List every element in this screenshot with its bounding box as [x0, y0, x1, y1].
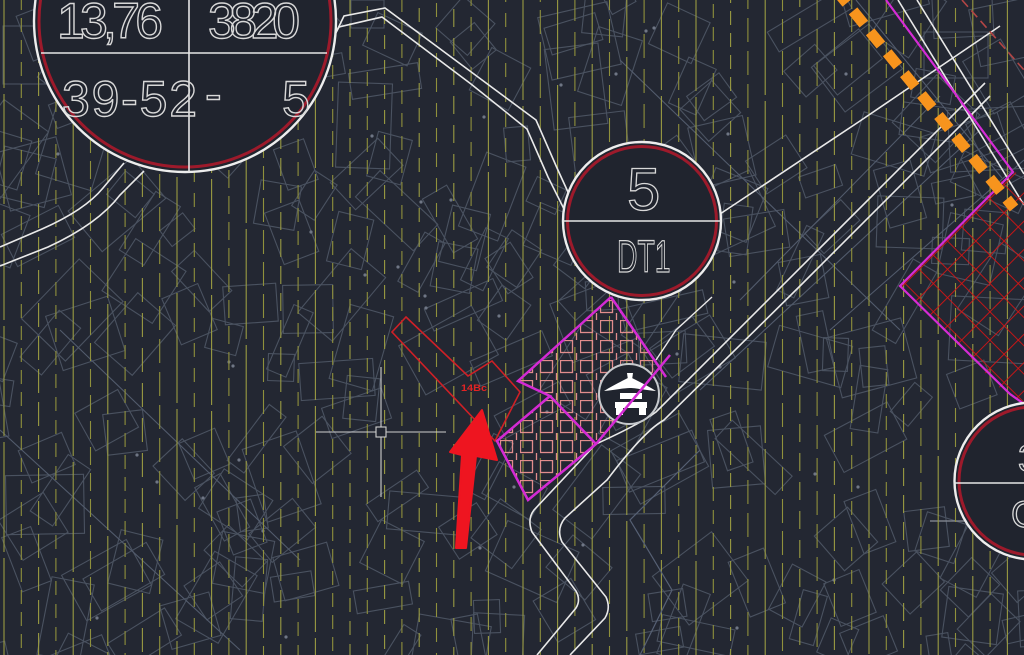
- svg-text:3: 3: [1018, 438, 1024, 479]
- svg-text:39-52: 39-52: [62, 71, 197, 127]
- svg-text:3820: 3820: [208, 0, 300, 49]
- svg-text:5: 5: [282, 71, 310, 127]
- svg-text:13,76: 13,76: [57, 0, 163, 49]
- svg-text:DT1: DT1: [617, 231, 671, 281]
- svg-text:14Bc: 14Bc: [461, 383, 487, 393]
- svg-text:C: C: [1011, 494, 1024, 535]
- svg-text:5: 5: [627, 156, 660, 223]
- svg-text:-: -: [205, 66, 222, 122]
